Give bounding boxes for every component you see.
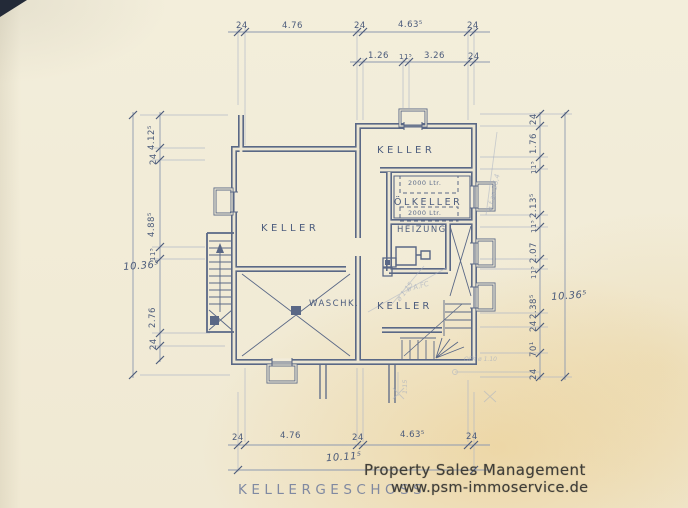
room-label-oelkeller: ÖLKELLER (394, 197, 462, 208)
dim-top1-4: 24 (467, 21, 479, 31)
dim-left-3: 11⁵ (149, 248, 157, 261)
dim-top1-3: 4.63⁵ (398, 20, 423, 30)
dim-left-4: 2.76 (148, 307, 158, 328)
floorplan-linework (0, 0, 688, 508)
room-label-waschkueche: WASCHK. (309, 299, 359, 309)
dim-left-5: 24 (149, 338, 159, 350)
chimney-flue-dot (385, 260, 390, 265)
dim-top2-3: 24 (468, 52, 480, 62)
watermark-company: Property Sales Management (364, 461, 586, 479)
dim-right-2: 11⁵ (530, 161, 538, 174)
dim-bottom-1: 4.76 (280, 431, 301, 441)
dim-right-4: 11⁵ (530, 220, 538, 233)
dim-right-8: 24 (529, 320, 539, 332)
witness-lines (140, 27, 572, 472)
dim-bottom-4: 24 (466, 432, 478, 442)
dimension-ticks (129, 28, 569, 474)
watermark-url: www.psm-immoservice.de (391, 480, 588, 496)
room-label-heizung: HEIZUNG (397, 225, 447, 235)
scanned-floorplan-page: KELLER ÖLKELLER HEIZUNG KELLER WASCHK. K… (0, 0, 688, 508)
dim-left-1: 24 (149, 153, 159, 165)
dim-top1-2: 24 (354, 21, 366, 31)
dim-bottom-0: 24 (232, 433, 244, 443)
dim-right-5: 2.07 (529, 242, 539, 263)
room-label-keller-left: KELLER (261, 223, 319, 234)
stair-base-block (210, 316, 219, 325)
window-gaps (234, 126, 474, 362)
dim-top2-1: 11⁵ (399, 53, 412, 61)
dim-right-1: 1.76 (529, 133, 539, 154)
room-label-keller-bottom: KELLER (377, 301, 432, 312)
dim-top1-1: 4.76 (282, 21, 303, 31)
dim-bottom-2: 24 (352, 433, 364, 443)
oil-tank-label-2: 2000 Ltr. (408, 209, 441, 217)
dim-left-0: 4.12⁵ (147, 125, 157, 150)
dimension-lines (133, 32, 565, 470)
dim-left-2: 4.88⁵ (147, 212, 157, 237)
scan-corner-artifact (0, 0, 27, 17)
oil-tank-label-1: 2000 Ltr. (408, 179, 441, 187)
room-label-keller-top: KELLER (377, 145, 435, 156)
pencil-note-5: 1.15 (401, 380, 409, 394)
pencil-note-4: OFK ø 1.10 (464, 356, 497, 363)
dim-right-0: 24 (529, 113, 539, 125)
dim-right-10: 24 (529, 368, 539, 380)
dim-right-7: 2.38⁵ (529, 294, 539, 319)
dim-top2-0: 1.26 (368, 51, 389, 61)
floor-drain-icon (291, 306, 301, 315)
walls-outer (234, 115, 474, 362)
dim-right-9: 70¹ (529, 341, 539, 357)
dim-bottom-3: 4.63⁵ (400, 430, 425, 440)
dim-top1-0: 24 (236, 21, 248, 31)
dim-top2-2: 3.26 (424, 51, 445, 61)
dim-right-6: 11⁵ (530, 266, 538, 279)
dim-right-3: 2.13⁵ (529, 193, 539, 218)
walls-inner-face (234, 115, 474, 362)
